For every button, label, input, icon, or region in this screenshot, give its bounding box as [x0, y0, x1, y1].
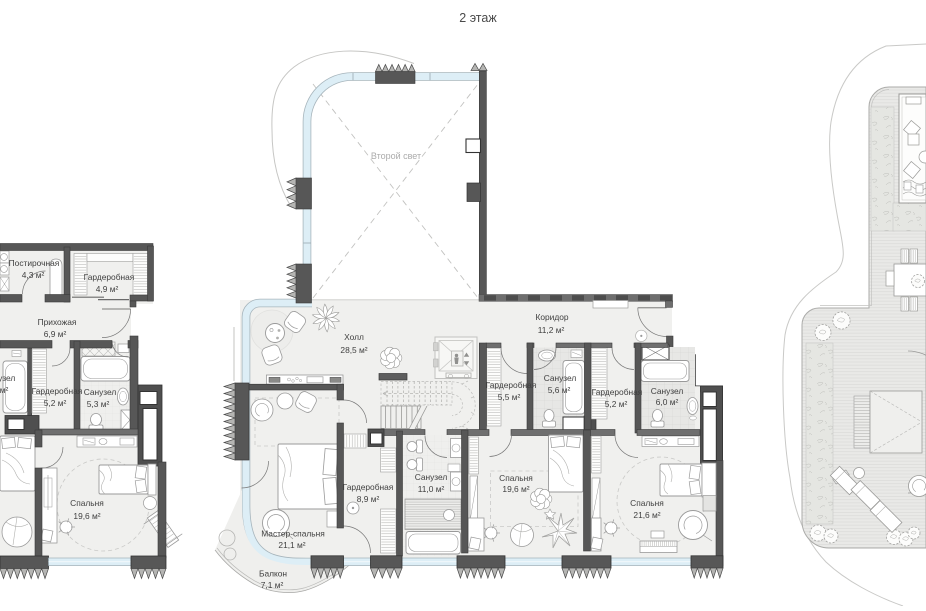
- svg-text:8,9 м²: 8,9 м²: [357, 494, 380, 504]
- svg-text:Постирочная: Постирочная: [9, 258, 60, 268]
- svg-text:Санузел: Санузел: [415, 472, 448, 482]
- svg-text:11,0 м²: 11,0 м²: [418, 484, 445, 494]
- svg-text:21,1 м²: 21,1 м²: [278, 540, 305, 550]
- svg-text:5,3 м²: 5,3 м²: [0, 385, 8, 395]
- svg-text:Спальня: Спальня: [499, 473, 533, 483]
- svg-text:Балкон: Балкон: [259, 569, 287, 579]
- svg-text:Гардеробная: Гардеробная: [32, 386, 83, 396]
- svg-text:Санузел: Санузел: [0, 373, 15, 383]
- svg-text:Спальня: Спальня: [70, 498, 104, 508]
- svg-text:7,1 м²: 7,1 м²: [261, 580, 284, 590]
- svg-text:Гардеробная: Гардеробная: [343, 482, 394, 492]
- svg-text:5,2 м²: 5,2 м²: [605, 399, 628, 409]
- svg-text:Гардеробная: Гардеробная: [84, 272, 135, 282]
- svg-text:19,6 м²: 19,6 м²: [502, 484, 529, 494]
- svg-text:5,3 м²: 5,3 м²: [87, 399, 110, 409]
- svg-text:6,9 м²: 6,9 м²: [44, 329, 67, 339]
- svg-text:Санузел: Санузел: [651, 386, 684, 396]
- svg-text:6,0 м²: 6,0 м²: [656, 397, 679, 407]
- svg-text:2 этаж: 2 этаж: [459, 11, 497, 25]
- svg-text:5,2 м²: 5,2 м²: [44, 398, 67, 408]
- svg-text:Спальня: Спальня: [630, 498, 664, 508]
- svg-text:Гардеробная: Гардеробная: [486, 380, 537, 390]
- svg-text:Санузел: Санузел: [544, 373, 577, 383]
- svg-text:Санузел: Санузел: [84, 387, 117, 397]
- svg-text:21,6 м²: 21,6 м²: [633, 510, 660, 520]
- svg-text:28,5 м²: 28,5 м²: [340, 345, 367, 355]
- svg-text:11,2 м²: 11,2 м²: [538, 325, 565, 335]
- svg-text:5,5 м²: 5,5 м²: [498, 392, 521, 402]
- svg-text:Холл: Холл: [344, 332, 364, 342]
- svg-text:4,9 м²: 4,9 м²: [96, 284, 119, 294]
- svg-text:19,6 м²: 19,6 м²: [73, 511, 100, 521]
- svg-text:Коридор: Коридор: [535, 312, 568, 322]
- svg-text:5,6 м²: 5,6 м²: [548, 385, 571, 395]
- svg-text:4,3 м²: 4,3 м²: [22, 270, 45, 280]
- svg-text:Второй свет: Второй свет: [371, 151, 421, 161]
- svg-text:Мастер-спальня: Мастер-спальня: [261, 529, 325, 539]
- svg-text:Прихожая: Прихожая: [38, 317, 77, 327]
- svg-text:Гардеробная: Гардеробная: [592, 387, 643, 397]
